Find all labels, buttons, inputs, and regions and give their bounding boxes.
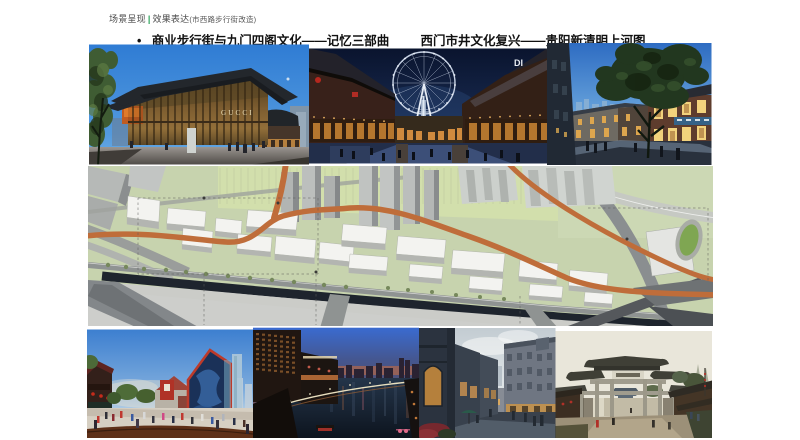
svg-text:GUCCI: GUCCI xyxy=(221,109,254,117)
svg-text:DI: DI xyxy=(514,58,523,68)
